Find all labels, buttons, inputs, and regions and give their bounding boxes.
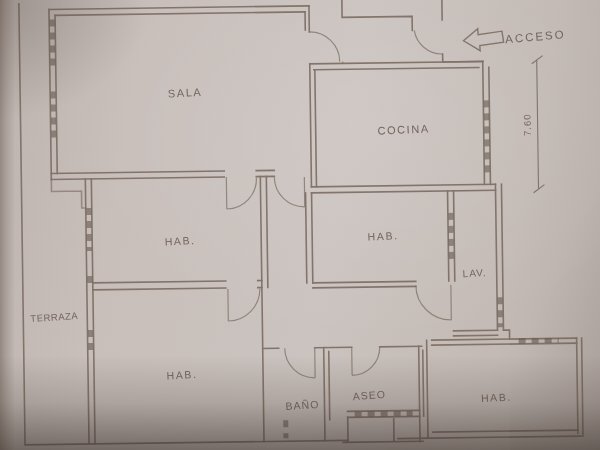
acceso-label: ACCESO [505, 28, 566, 45]
acceso-annotation: ACCESO [463, 26, 567, 52]
paper-corner-shadow [0, 0, 150, 120]
acceso-arrow-icon [463, 27, 504, 52]
dimension-value: 7.60 [521, 113, 532, 136]
room-label-cocina: COCINA [377, 122, 430, 137]
room-label-sala: SALA [168, 86, 203, 100]
room-label-terraza: TERRAZA [30, 310, 79, 324]
floorplan-photo: 7.60 ACCESO SALA COCINA HAB. HAB. LAV. T… [0, 0, 600, 450]
dimension-line-760 [532, 56, 545, 193]
doors-layer [224, 30, 452, 379]
paper-bottom-shadow [0, 355, 600, 450]
room-label-hab-mid-left: HAB. [164, 234, 195, 247]
room-label-hab-mid-center: HAB. [367, 229, 398, 242]
room-label-lav: LAV. [462, 267, 487, 279]
